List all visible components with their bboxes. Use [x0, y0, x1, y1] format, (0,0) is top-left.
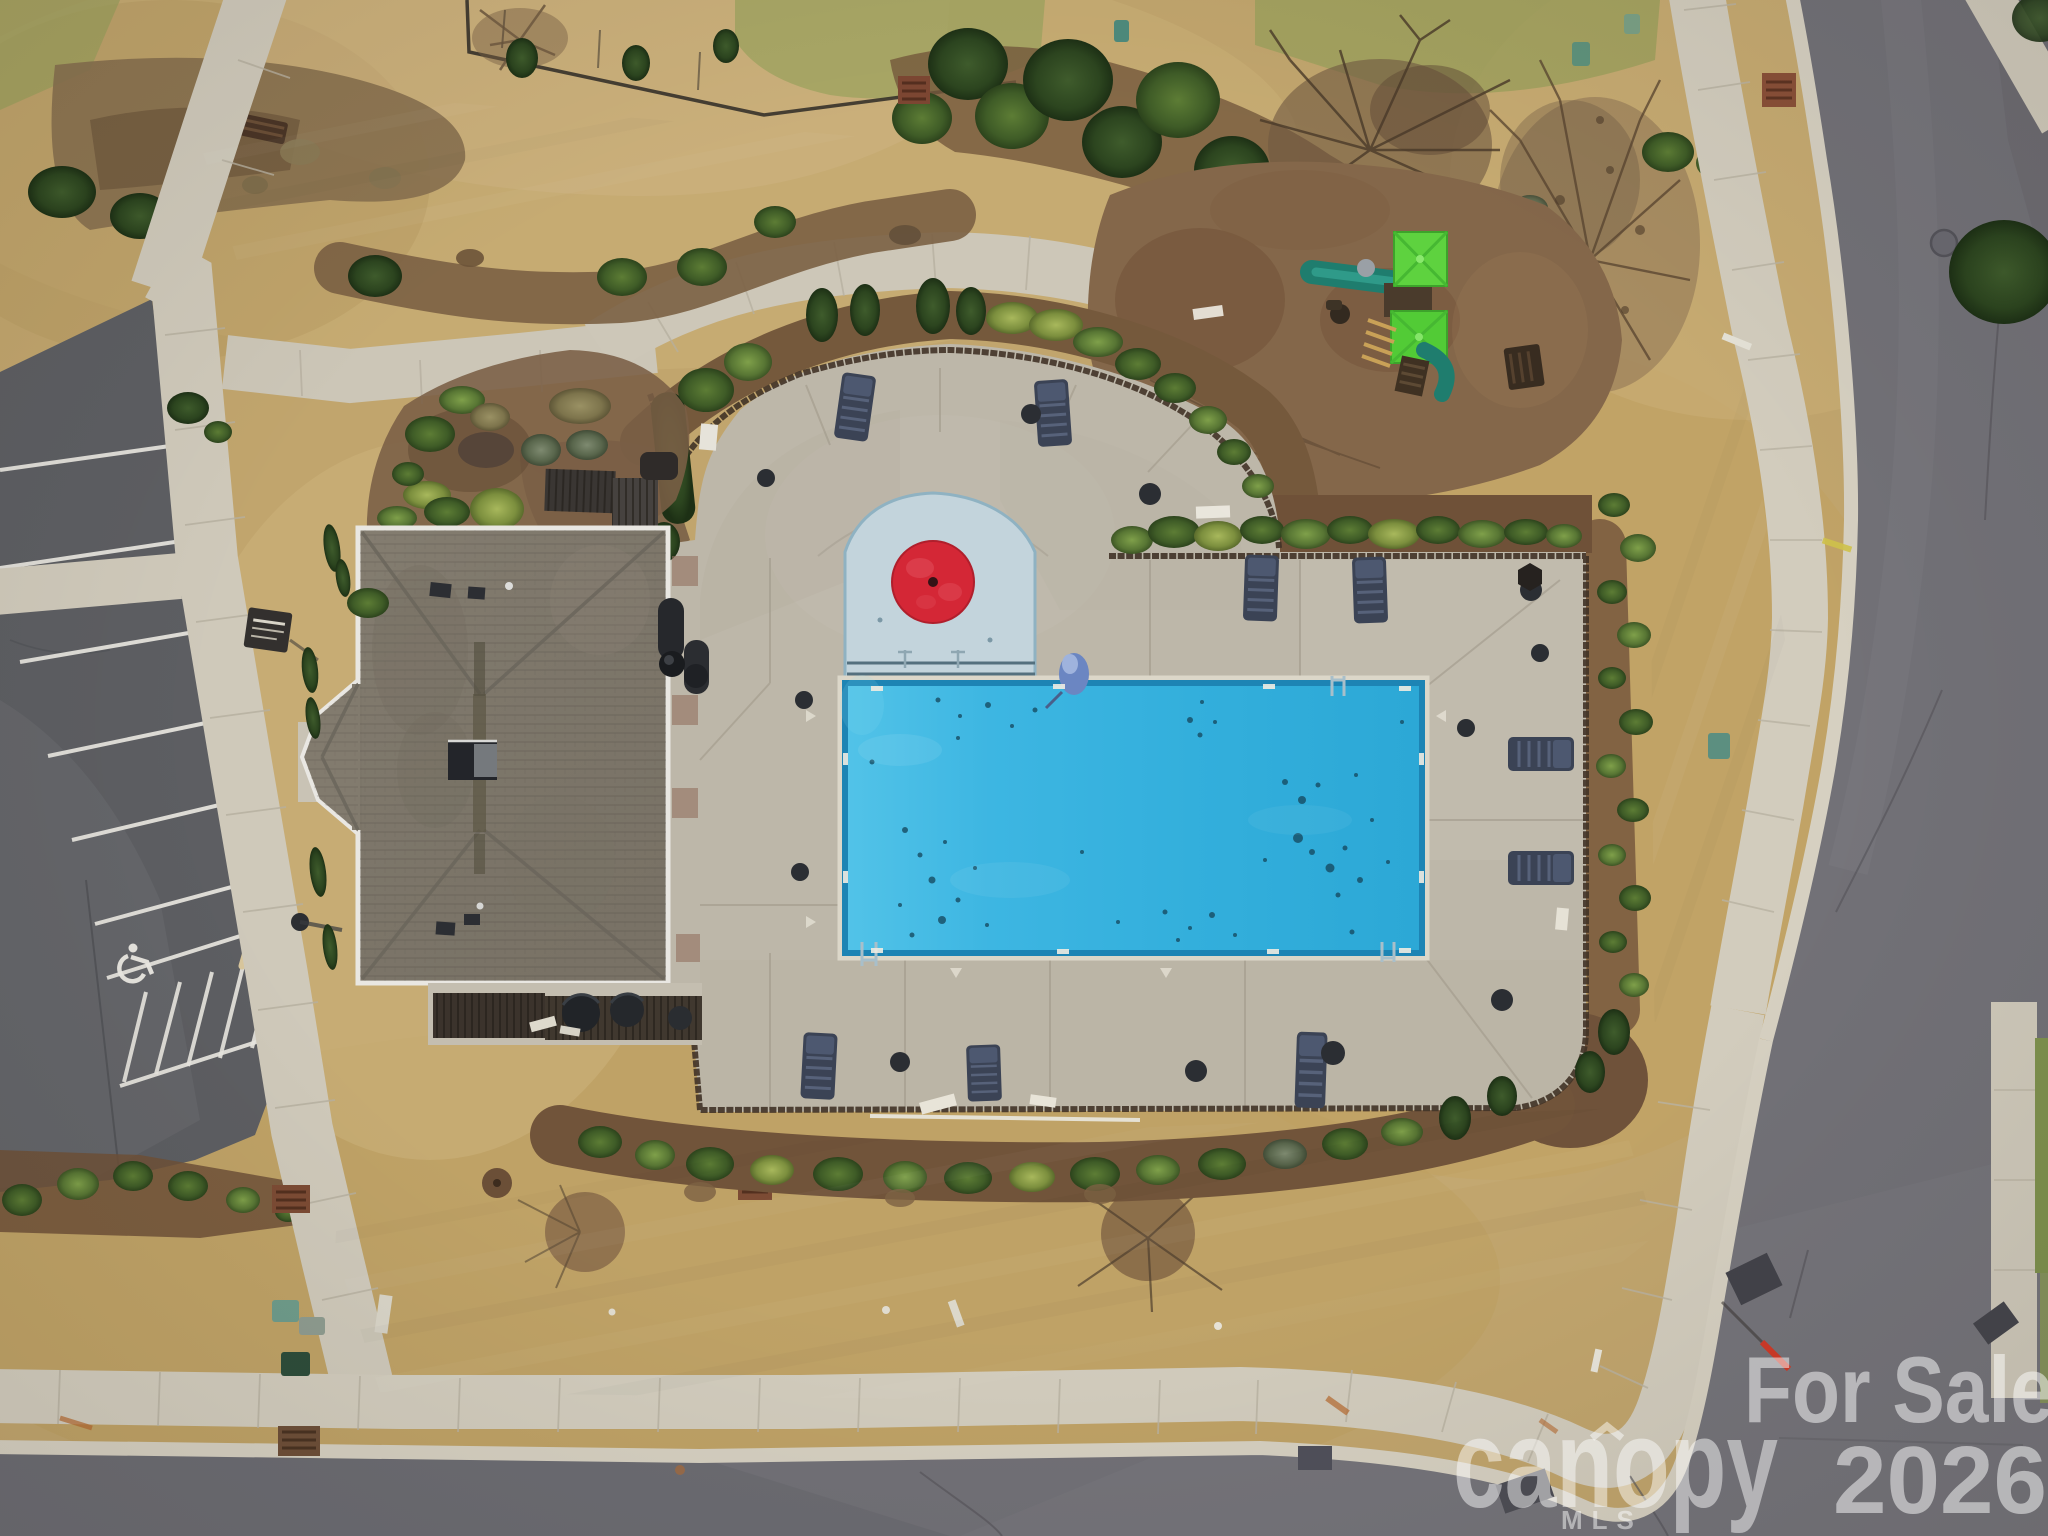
svg-text:2026: 2026 — [1833, 1427, 2047, 1534]
svg-text:MLS: MLS — [1561, 1505, 1643, 1535]
